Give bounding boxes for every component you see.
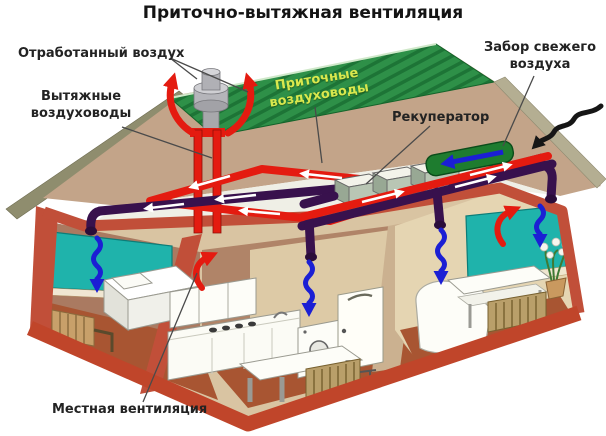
label-fresh-air-line2: воздуха: [474, 56, 606, 73]
label-recuperator: Рекуператор: [392, 110, 489, 125]
label-fresh-air-line1: Забор свежего: [474, 39, 606, 56]
label-exhaust-ducts: Вытяжные воздуховоды: [22, 88, 140, 122]
label-fresh-air-intake: Забор свежего воздуха: [474, 39, 606, 73]
diagram-title: Приточно-вытяжная вентиляция: [0, 3, 606, 23]
label-local-ventilation: Местная вентиляция: [52, 402, 207, 417]
label-exhaust-air: Отработанный воздух: [18, 46, 184, 61]
label-exhaust-ducts-line1: Вытяжные: [22, 88, 140, 105]
label-exhaust-ducts-line2: воздуховоды: [22, 105, 140, 122]
ventilation-diagram: Приточно-вытяжная вентиляция Отработанны…: [0, 0, 606, 436]
